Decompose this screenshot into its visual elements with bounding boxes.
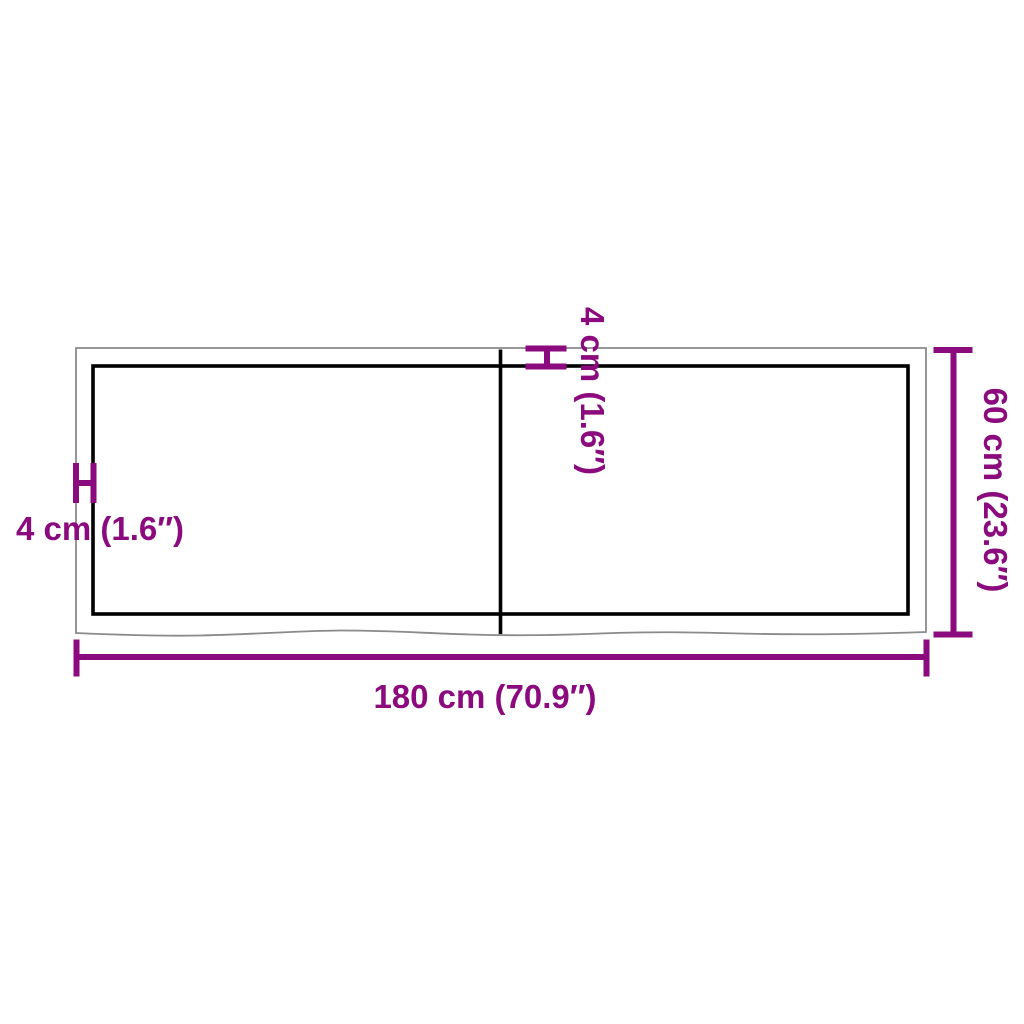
right-height-dimension-line [934, 350, 973, 635]
bottom-width-dimension-line [77, 640, 927, 677]
right-height-label: 60 cm (23.6″) [977, 388, 1014, 593]
top-thickness-marker [526, 349, 567, 367]
dimension-diagram-canvas: 4 cm (1.6″) 4 cm (1.6″) 60 cm (23.6″) 18… [0, 0, 1024, 1024]
top-thickness-label: 4 cm (1.6″) [574, 307, 611, 475]
dimension-diagram: 4 cm (1.6″) 4 cm (1.6″) 60 cm (23.6″) 18… [0, 0, 1024, 1024]
left-thickness-marker [76, 463, 94, 503]
bottom-width-label: 180 cm (70.9″) [373, 678, 596, 715]
left-thickness-label: 4 cm (1.6″) [16, 510, 184, 547]
